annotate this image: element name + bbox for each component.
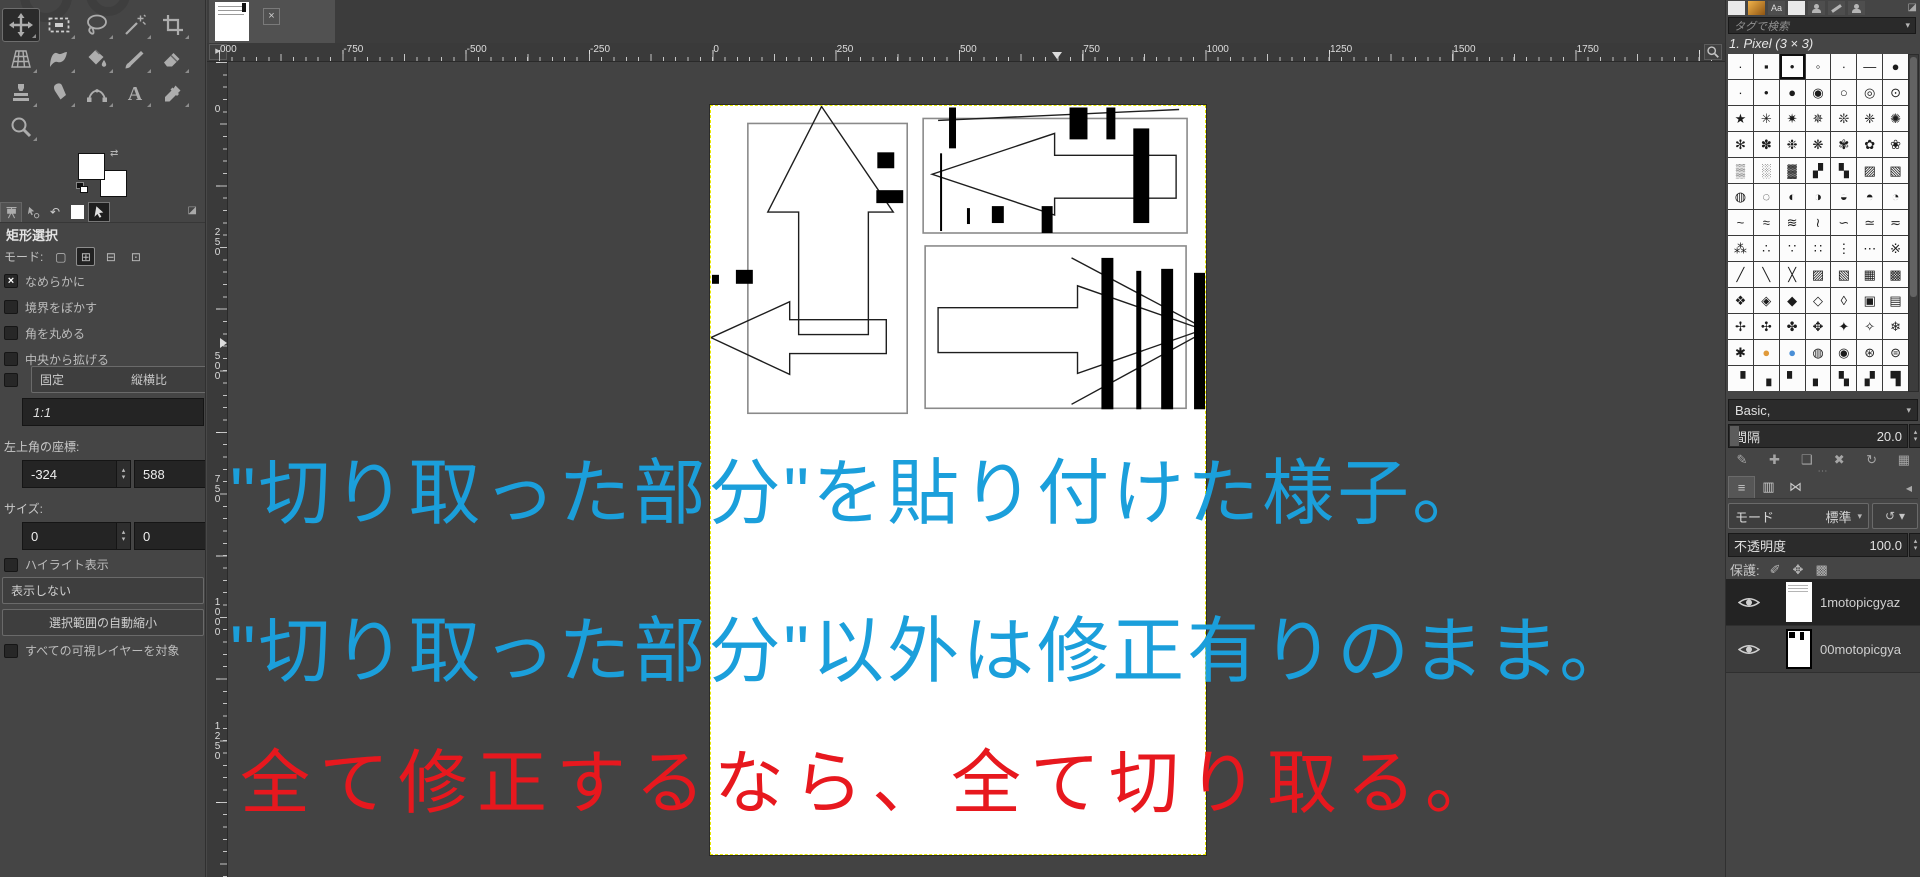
brush-cell[interactable]: ▝ <box>1728 366 1753 391</box>
easel-icon <box>4 205 19 220</box>
opacity-spinner[interactable]: ▴ ▾ <box>1909 533 1920 557</box>
guides-value: 表示しない <box>11 582 71 599</box>
brush-cell[interactable]: ◑ <box>1806 184 1831 209</box>
document-history-dialog-tab[interactable] <box>1848 1 1865 15</box>
checkbox-icon <box>4 644 18 658</box>
clone-tool-button[interactable] <box>2 76 40 110</box>
rectangle-select-tool-button[interactable] <box>40 8 78 42</box>
brush-cell[interactable]: ● <box>1883 54 1908 79</box>
ruler-label: 1500 <box>1453 44 1576 55</box>
auto-shrink-button[interactable]: 選択範囲の自動縮小 <box>2 609 204 636</box>
brush-cell[interactable]: ✦ <box>1831 314 1856 339</box>
ruler-label: 0 <box>713 44 836 55</box>
tool-icon <box>9 115 33 139</box>
ruler-label: -750 <box>343 44 466 55</box>
brush-cell[interactable]: ∙ <box>1831 54 1856 79</box>
brush-cell[interactable]: • <box>1780 54 1805 79</box>
text-tool-button[interactable] <box>116 76 154 110</box>
brush-cell[interactable]: ◦ <box>1806 54 1831 79</box>
spacing-slider[interactable]: 間隔 20.0 <box>1728 424 1908 448</box>
brush-cell[interactable]: ✵ <box>1806 106 1831 131</box>
image-tab-thumbnail <box>215 2 249 41</box>
dock-tab[interactable]: ▥ <box>1755 476 1782 498</box>
spin-up-icon[interactable]: ▴ <box>122 467 126 474</box>
lock-toggle-icon[interactable]: ✥ <box>1793 562 1804 578</box>
layer-name: 00motopicgya <box>1820 642 1901 657</box>
image-tab-strip: × <box>207 0 1725 43</box>
paint-dynamics-dialog-tab[interactable] <box>1828 1 1845 15</box>
spin-up-icon[interactable]: ▴ <box>1914 429 1918 436</box>
layer-mode-row: モード 標準 ▾ ↺ ▾ <box>1728 503 1918 529</box>
checkbox-label: 境界をぼかす <box>25 299 97 316</box>
brush-cell[interactable]: ▤ <box>1883 288 1908 313</box>
size-height-field[interactable]: 0 <box>134 522 206 550</box>
brush-cell[interactable]: ◒ <box>1831 184 1856 209</box>
brush-cell[interactable]: · <box>1728 54 1753 79</box>
device-status-icon <box>26 205 41 220</box>
brush-cell[interactable]: ◉ <box>1831 340 1856 365</box>
color-picker-tool-button[interactable] <box>154 76 192 110</box>
brush-cell[interactable]: ≋ <box>1780 210 1805 235</box>
brush-group-value: Basic, <box>1735 403 1770 418</box>
checkbox-label: なめらかに <box>25 273 85 290</box>
brush-cell[interactable]: ◌ <box>1754 184 1779 209</box>
spin-down-icon[interactable]: ▾ <box>1914 545 1918 552</box>
brush-cell[interactable]: ▩ <box>1883 262 1908 287</box>
brush-cell[interactable]: ◉ <box>1806 80 1831 105</box>
v-ruler-labels: 025050075010001250 <box>207 105 228 845</box>
crop-tool-button[interactable] <box>154 8 192 42</box>
brush-cell[interactable]: ▒ <box>1728 158 1753 183</box>
brush-cell[interactable]: ⋮ <box>1831 236 1856 261</box>
tool-icon <box>123 47 147 71</box>
brush-cell[interactable]: ✻ <box>1728 132 1753 157</box>
pointer-position-marker <box>1052 52 1062 59</box>
layer-row[interactable]: 00motopicgya <box>1726 626 1920 673</box>
magnifier-icon <box>1706 45 1720 59</box>
dock-tab[interactable]: ⋈ <box>1782 476 1809 498</box>
gimp-window: { "toolbox": { "tools": [ {"name":"move"… <box>0 0 1920 877</box>
tool-icon <box>85 81 109 105</box>
brush-cell[interactable]: ⋯ <box>1857 236 1882 261</box>
tool-icon <box>161 47 185 71</box>
sample-merged-checkbox-row[interactable]: すべての可視レイヤーを対象 <box>4 642 206 659</box>
tool-icon <box>47 13 71 37</box>
ruler-label: 1250 <box>207 722 228 845</box>
tab-image-thumbnail[interactable] <box>66 202 88 222</box>
spin-up-icon[interactable]: ▴ <box>122 529 126 536</box>
default-colors-icon[interactable] <box>76 182 89 193</box>
ruler-label: 1250 <box>1330 44 1453 55</box>
brush-cell[interactable]: • <box>1754 80 1779 105</box>
toolbox-panel: ⇄ ↶ ◪ 矩形選択 モード: ▢⊞⊟⊡ × なめらかに 境界をぼかす 角を丸め… <box>0 0 206 877</box>
fixed-row: 固定 縦横比 <box>4 366 206 393</box>
search-placeholder: タグで検索 <box>1734 18 1789 34</box>
highlight-label: ハイライト表示 <box>25 556 109 573</box>
brush-cell[interactable]: ≈ <box>1754 210 1779 235</box>
brush-cell[interactable]: ≂ <box>1883 210 1908 235</box>
position-spinner[interactable]: ▴ ▾ <box>116 460 131 488</box>
brush-cell[interactable]: ▪ <box>1754 54 1779 79</box>
size-label: サイズ: <box>4 500 43 517</box>
tool-options-title: 矩形選択 <box>6 225 58 244</box>
brush-cell[interactable]: ▞ <box>1857 366 1882 391</box>
checkbox-icon <box>4 352 18 366</box>
pointer-icon <box>92 205 107 220</box>
ruler-label: 250 <box>837 44 960 55</box>
position-y-field[interactable]: 588 <box>134 460 206 488</box>
brush-cell[interactable]: ▘ <box>1780 366 1805 391</box>
brush-cell[interactable]: ◓ <box>1857 184 1882 209</box>
brush-cell[interactable]: ▖ <box>1806 366 1831 391</box>
tag-search-input[interactable]: タグで検索 ▾ <box>1728 17 1916 34</box>
brush-cell[interactable]: ▦ <box>1857 262 1882 287</box>
fixed-combo[interactable]: 固定 縦横比 <box>31 366 206 393</box>
ruler-label: 1750 <box>1577 44 1700 55</box>
brush-cell[interactable]: ○ <box>1831 80 1856 105</box>
canvas-zone: × ▶ 000-750-500-250025050075010001250150… <box>207 0 1725 877</box>
dock-tab[interactable]: ≡ <box>1728 476 1755 498</box>
brush-cell[interactable]: ▨ <box>1857 158 1882 183</box>
mode-buttons: ▢⊞⊟⊡ <box>51 247 145 266</box>
brush-cell[interactable]: ※ <box>1883 236 1908 261</box>
brush-cell[interactable]: ● <box>1780 340 1805 365</box>
brush-cell[interactable]: ░ <box>1754 158 1779 183</box>
brush-cell[interactable]: ▚ <box>1831 158 1856 183</box>
brush-cell[interactable]: ⊙ <box>1883 80 1908 105</box>
lock-toggle-icon[interactable]: ▩ <box>1815 562 1827 578</box>
checkbox-label: 角を丸める <box>25 325 85 342</box>
brush-cell[interactable]: ✿ <box>1857 132 1882 157</box>
checkbox-icon <box>4 300 18 314</box>
selection-mode-button[interactable]: ⊡ <box>126 247 145 266</box>
ruler-label: 500 <box>960 44 1083 55</box>
brush-cell[interactable]: ✽ <box>1754 132 1779 157</box>
fixed-checkbox[interactable] <box>4 373 18 387</box>
foreground-color-swatch[interactable] <box>78 153 105 180</box>
brush-cell[interactable]: ● <box>1780 80 1805 105</box>
ruler-label: -500 <box>467 44 590 55</box>
brush-grid: ·▪•◦∙—●∙•●◉○◎⊙★✳✷✵❊❈✺✻✽❉❋✾✿❀▒░▓▞▚▨▧◍◌◐◑◒… <box>1728 54 1908 391</box>
paths-tool-button[interactable] <box>78 76 116 110</box>
lock-toggle-icon[interactable]: ✐ <box>1770 562 1781 578</box>
canvas-viewport[interactable]: "切り取った部分"を貼り付けた様子。"切り取った部分"以外は修正有りのまま。全て… <box>228 62 1725 877</box>
brush-cell[interactable]: ❀ <box>1883 132 1908 157</box>
selection-mode-button[interactable]: ⊟ <box>101 247 120 266</box>
dock-collapse-icon[interactable]: ◀ <box>1902 480 1916 497</box>
horizontal-ruler: ▶ 000-750-500-25002505007501000125015001… <box>207 43 1725 62</box>
layer-row[interactable]: 1motopicgyaz <box>1726 579 1920 626</box>
brush-cell[interactable]: ▞ <box>1806 158 1831 183</box>
tool-icon <box>123 81 147 105</box>
brush-cell[interactable]: ∷ <box>1806 236 1831 261</box>
ruler-label: 750 <box>1083 44 1206 55</box>
fixed-label: 固定 <box>40 371 64 388</box>
fonts-dialog-tab[interactable]: Aa <box>1768 1 1785 15</box>
tab-pointer[interactable] <box>88 202 110 222</box>
tool-icon <box>161 81 185 105</box>
size-width-field[interactable]: 0 <box>22 522 117 550</box>
brush-scrollbar[interactable] <box>1908 54 1919 392</box>
history-dialog-tab[interactable] <box>1808 1 1825 15</box>
checkbox-list: × なめらかに 境界をぼかす 角を丸める 中央から拡げる <box>4 268 204 372</box>
brush-cell[interactable]: ⊜ <box>1883 340 1908 365</box>
brush-cell[interactable]: ✾ <box>1831 132 1856 157</box>
brushes-dialog-tab[interactable] <box>1728 1 1745 15</box>
brush-cell[interactable]: ◊ <box>1831 288 1856 313</box>
eraser-tool-button[interactable] <box>154 42 192 76</box>
tool-option-checkbox[interactable]: 境界をぼかす <box>4 294 204 320</box>
brush-cell[interactable]: ❈ <box>1857 106 1882 131</box>
brush-cell[interactable]: ≃ <box>1857 210 1882 235</box>
spacing-value: 20.0 <box>1877 429 1902 444</box>
layer-mode-value: 標準 <box>1825 507 1851 526</box>
selected-brush-name: 1. Pixel (3 × 3) <box>1729 36 1813 51</box>
brush-cell[interactable]: ◇ <box>1806 288 1831 313</box>
highlight-checkbox-row[interactable]: ハイライト表示 <box>4 556 206 573</box>
spin-down-icon[interactable]: ▾ <box>122 474 126 481</box>
zoom-tool-button[interactable] <box>2 110 40 144</box>
annotation-text: "切り取った部分"以外は修正有りのまま。 <box>230 616 1634 688</box>
brush-cell[interactable]: ▚ <box>1831 366 1856 391</box>
lock-label: 保護: <box>1730 560 1760 579</box>
brush-cell[interactable]: ❄ <box>1883 314 1908 339</box>
layer-thumbnail[interactable] <box>1786 629 1812 669</box>
smudge-tool-button[interactable] <box>40 76 78 110</box>
tool-icon <box>123 13 147 37</box>
brush-cell[interactable]: ▣ <box>1857 288 1882 313</box>
brush-cell[interactable]: ❖ <box>1728 288 1753 313</box>
annotation-text: "切り取った部分"を貼り付けた様子。 <box>230 458 1487 530</box>
opacity-slider[interactable]: 不透明度 100.0 <box>1728 533 1908 557</box>
bucket-fill-tool-button[interactable] <box>78 42 116 76</box>
opacity-value: 100.0 <box>1869 538 1902 553</box>
guides-combo[interactable]: 表示しない <box>2 577 204 604</box>
image-tab[interactable]: × <box>209 0 335 43</box>
brush-cell[interactable]: ◍ <box>1806 340 1831 365</box>
brush-cell[interactable]: ▜ <box>1883 366 1908 391</box>
ruler-label: 750 <box>207 475 228 598</box>
brush-cell[interactable]: ◔ <box>1883 184 1908 209</box>
aspect-ratio-input[interactable]: 1:1 <box>22 398 204 426</box>
gradients-dialog-tab[interactable] <box>1788 1 1805 15</box>
eye-icon[interactable] <box>1738 642 1760 657</box>
spacing-label: 間隔 <box>1734 427 1760 446</box>
checkbox-icon: × <box>4 274 18 288</box>
eye-icon[interactable] <box>1738 595 1760 610</box>
brush-cell[interactable]: ✤ <box>1780 314 1805 339</box>
brush-cell[interactable]: ❊ <box>1831 106 1856 131</box>
zoom-canvas-button[interactable] <box>1704 44 1722 60</box>
brush-cell[interactable]: ∵ <box>1780 236 1805 261</box>
brush-cell[interactable]: ⁂ <box>1728 236 1753 261</box>
tool-icon <box>47 47 71 71</box>
brush-cell[interactable]: ◈ <box>1754 288 1779 313</box>
spin-down-icon[interactable]: ▾ <box>122 536 126 543</box>
dialog-tabs: Aa <box>1726 1 1904 16</box>
brush-cell[interactable]: ╱ <box>1728 262 1753 287</box>
brush-cell[interactable]: ★ <box>1728 106 1753 131</box>
brush-cell[interactable]: ◎ <box>1857 80 1882 105</box>
brush-cell[interactable]: ╲ <box>1754 262 1779 287</box>
warp-transform-tool-button[interactable] <box>40 42 78 76</box>
selection-mode-button[interactable]: ▢ <box>51 247 70 266</box>
brush-cell[interactable]: ∽ <box>1831 210 1856 235</box>
size-spinner[interactable]: ▴ ▾ <box>116 522 131 550</box>
brush-cell[interactable]: ≀ <box>1806 210 1831 235</box>
tool-icon <box>9 47 33 71</box>
layer-name: 1motopicgyaz <box>1820 595 1900 610</box>
brush-cell[interactable]: ❋ <box>1806 132 1831 157</box>
ruler-label: 0 <box>207 105 228 228</box>
brush-cell[interactable]: ⊛ <box>1857 340 1882 365</box>
brush-cell[interactable]: ✷ <box>1780 106 1805 131</box>
spin-up-icon[interactable]: ▴ <box>1914 538 1918 545</box>
brush-cell[interactable]: ▗ <box>1754 366 1779 391</box>
brush-cell[interactable]: ◍ <box>1728 184 1753 209</box>
brush-cell[interactable]: ✺ <box>1883 106 1908 131</box>
paintbrush-tool-button[interactable] <box>116 42 154 76</box>
ruler-label: 1000 <box>207 598 228 721</box>
brush-cell[interactable]: ╳ <box>1780 262 1805 287</box>
brush-cell[interactable]: ✧ <box>1857 314 1882 339</box>
tool-icon <box>47 81 71 105</box>
layer-mode-label: モード <box>1735 507 1774 526</box>
ruler-label: 000 <box>220 44 343 55</box>
pointer-position-marker <box>220 338 227 348</box>
tool-icon <box>85 47 109 71</box>
mode-label: モード: <box>4 248 43 265</box>
tool-options-dock-tabs: ↶ <box>0 203 206 223</box>
opacity-label: 不透明度 <box>1734 536 1786 555</box>
image-thumbnail-icon <box>71 205 84 219</box>
spacing-spinner[interactable]: ▴ ▾ <box>1909 424 1920 448</box>
blend-space-button[interactable]: ↺ ▾ <box>1872 503 1918 529</box>
vertical-ruler: 025050075010001250 <box>207 62 228 877</box>
checkbox-icon <box>4 326 18 340</box>
move-tool-button[interactable] <box>2 8 40 42</box>
spin-down-icon[interactable]: ▾ <box>1914 436 1918 443</box>
tab-tool-options[interactable] <box>0 202 22 222</box>
free-select-tool-button[interactable] <box>78 8 116 42</box>
patterns-dialog-tab[interactable] <box>1748 1 1765 15</box>
brush-cell[interactable]: ▧ <box>1831 262 1856 287</box>
layer-list: 1motopicgyaz 00motopicgya <box>1726 579 1920 673</box>
swap-colors-icon[interactable]: ⇄ <box>110 148 118 159</box>
tool-icon <box>161 13 185 37</box>
selection-mode-row: モード: ▢⊞⊟⊡ <box>4 247 145 266</box>
brush-cell[interactable]: ✥ <box>1806 314 1831 339</box>
ruler-label: 1000 <box>1207 44 1330 55</box>
selection-mode-button[interactable]: ⊞ <box>76 247 95 266</box>
dock2-tabs: ≡▥⋈ <box>1728 477 1918 499</box>
layer-mode-combo[interactable]: モード 標準 ▾ <box>1728 503 1869 529</box>
sample-merged-label: すべての可視レイヤーを対象 <box>25 642 179 659</box>
reset-icon: ↺ <box>1885 509 1895 523</box>
dock-menu-icon[interactable]: ◪ <box>188 205 197 216</box>
chevron-down-icon: ▾ <box>1857 511 1862 522</box>
brush-cell[interactable]: — <box>1857 54 1882 79</box>
brush-cell[interactable]: ∴ <box>1754 236 1779 261</box>
tool-grid <box>2 8 202 144</box>
position-x-field[interactable]: -324 <box>22 460 117 488</box>
brush-cell[interactable]: ✣ <box>1754 314 1779 339</box>
tab-device-status[interactable] <box>22 202 44 222</box>
annotation-text: 全て修正するなら、全て切り取る。 <box>240 748 1504 818</box>
brush-cell[interactable]: ❉ <box>1780 132 1805 157</box>
brush-cell[interactable]: ◆ <box>1780 288 1805 313</box>
brush-cell[interactable]: ✢ <box>1728 314 1753 339</box>
brush-cell[interactable]: ▓ <box>1780 158 1805 183</box>
brush-cell[interactable]: ● <box>1754 340 1779 365</box>
panel-menu-icon[interactable]: ◪ <box>1908 2 1917 13</box>
lock-row: 保護: ✐✥▩ <box>1730 560 1828 579</box>
fixed-value: 縦横比 <box>131 371 205 388</box>
brush-cell[interactable]: ~ <box>1728 210 1753 235</box>
ruler-label: 250 <box>207 228 228 351</box>
tool-icon <box>85 13 109 37</box>
chevron-down-icon: ▾ <box>1906 405 1911 416</box>
brush-cell[interactable]: ◐ <box>1780 184 1805 209</box>
tool-option-checkbox[interactable]: 角を丸める <box>4 320 204 346</box>
chevron-down-icon: ▾ <box>1899 509 1905 523</box>
brush-cell[interactable]: ▨ <box>1806 262 1831 287</box>
tool-option-checkbox[interactable]: × なめらかに <box>4 268 204 294</box>
brush-cell[interactable]: ✱ <box>1728 340 1753 365</box>
color-area: ⇄ <box>70 148 140 203</box>
ruler-label: -250 <box>590 44 713 55</box>
layer-thumbnail[interactable] <box>1786 582 1812 622</box>
brush-group-combo[interactable]: Basic, ▾ <box>1728 399 1918 421</box>
brush-cell[interactable]: ▧ <box>1883 158 1908 183</box>
brushes-layers-panel: Aa ◪ タグで検索 ▾ 1. Pixel (3 × 3) ·▪•◦∙—●∙•●… <box>1725 0 1920 877</box>
h-ruler-labels: 000-750-500-2500250500750100012501500175… <box>220 44 1700 55</box>
checkbox-label: 中央から拡げる <box>25 351 109 368</box>
close-tab-icon[interactable]: × <box>263 8 280 25</box>
fuzzy-select-tool-button[interactable] <box>116 8 154 42</box>
perspective-tool-button[interactable] <box>2 42 40 76</box>
position-label: 左上角の座標: <box>4 438 79 455</box>
brush-cell[interactable]: ✳ <box>1754 106 1779 131</box>
undo-icon: ↶ <box>50 205 60 219</box>
chevron-down-icon[interactable]: ▾ <box>1905 20 1910 31</box>
tab-undo-history[interactable]: ↶ <box>44 202 66 222</box>
tool-icon <box>9 81 33 105</box>
checkbox-icon <box>4 558 18 572</box>
lock-icons: ✐✥▩ <box>1770 562 1828 578</box>
scrollbar-thumb[interactable] <box>1910 57 1917 297</box>
brush-cell[interactable]: ∙ <box>1728 80 1753 105</box>
tool-icon <box>9 13 33 37</box>
ruler-label: 500 <box>207 352 228 475</box>
